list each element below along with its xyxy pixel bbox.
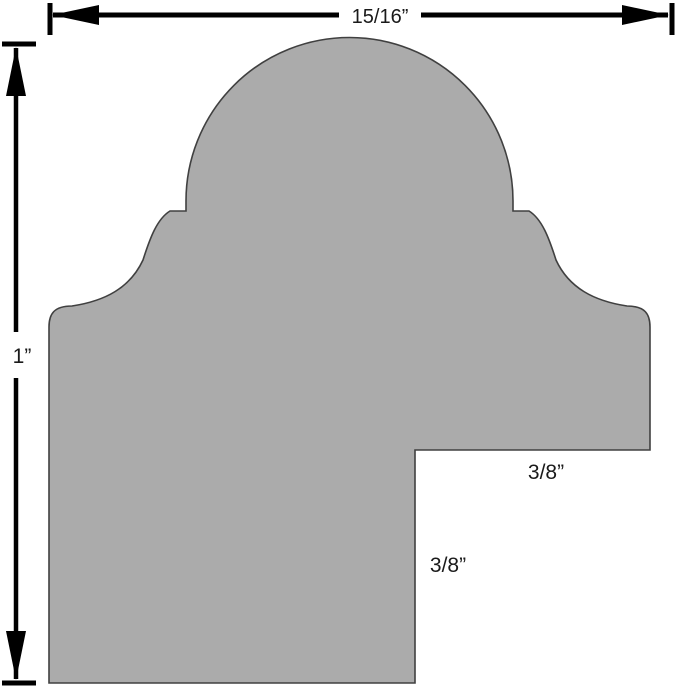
- rabbet-width-label: 3/8”: [528, 461, 564, 484]
- height-dimension-label: 1”: [13, 345, 32, 368]
- arrowhead-right-icon: [622, 5, 669, 25]
- rabbet-height-label: 3/8”: [430, 554, 466, 577]
- width-dimension-label: 15/16”: [352, 6, 409, 28]
- arrowhead-up-icon: [6, 47, 26, 96]
- arrowhead-left-icon: [52, 5, 99, 25]
- diagram-canvas: 15/16” 1” 3/8” 3/8”: [0, 0, 679, 687]
- moulding-diagram: 15/16” 1” 3/8” 3/8”: [0, 0, 679, 687]
- arrowhead-down-icon: [6, 631, 26, 680]
- moulding-profile-shape: [49, 38, 650, 684]
